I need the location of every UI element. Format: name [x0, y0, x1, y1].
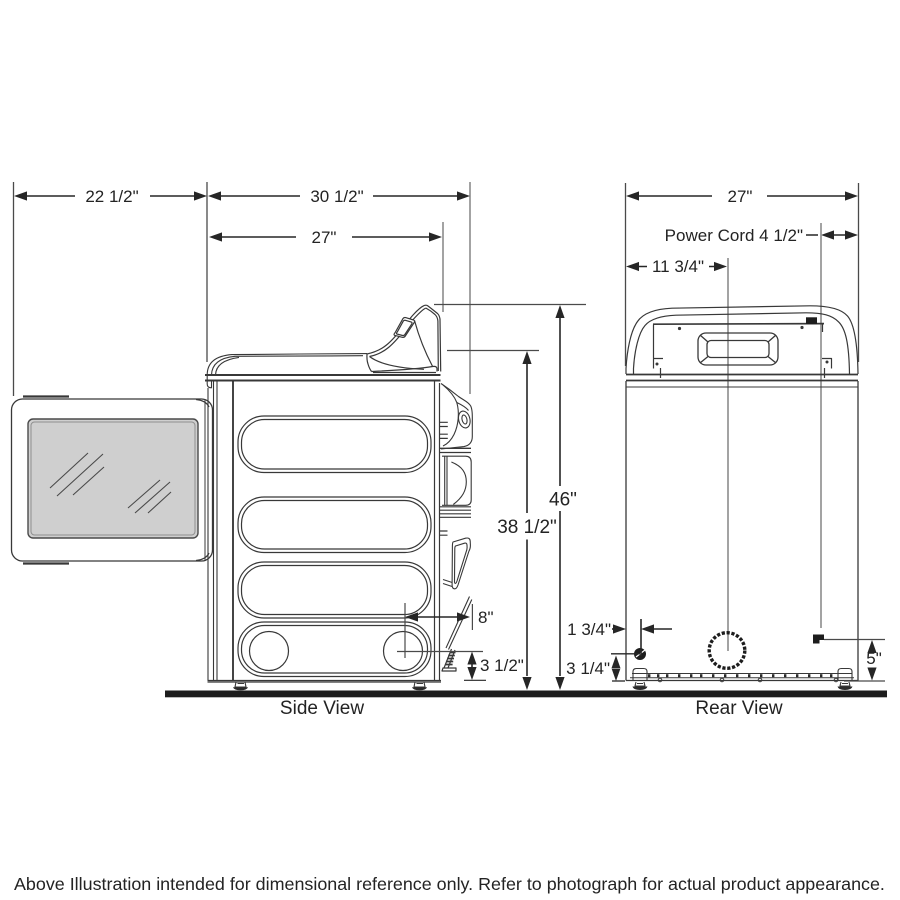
- svg-text:27": 27": [312, 228, 337, 247]
- svg-text:11 3/4": 11 3/4": [652, 257, 704, 276]
- svg-text:5": 5": [866, 649, 882, 668]
- svg-text:Rear View: Rear View: [695, 698, 783, 719]
- svg-text:8": 8": [478, 608, 494, 627]
- svg-text:3 1/2": 3 1/2": [480, 656, 524, 675]
- svg-text:Power Cord 4 1/2": Power Cord 4 1/2": [665, 226, 803, 245]
- svg-text:Side View: Side View: [280, 698, 364, 719]
- svg-text:3 1/4": 3 1/4": [566, 659, 610, 678]
- svg-text:1 3/4": 1 3/4": [567, 620, 611, 639]
- svg-text:27": 27": [728, 187, 753, 206]
- svg-text:38 1/2": 38 1/2": [497, 517, 557, 538]
- svg-text:30 1/2": 30 1/2": [310, 187, 363, 206]
- svg-text:46": 46": [549, 490, 577, 511]
- svg-text:22 1/2": 22 1/2": [85, 187, 138, 206]
- svg-text:Above Illustration intended fo: Above Illustration intended for dimensio…: [14, 874, 885, 894]
